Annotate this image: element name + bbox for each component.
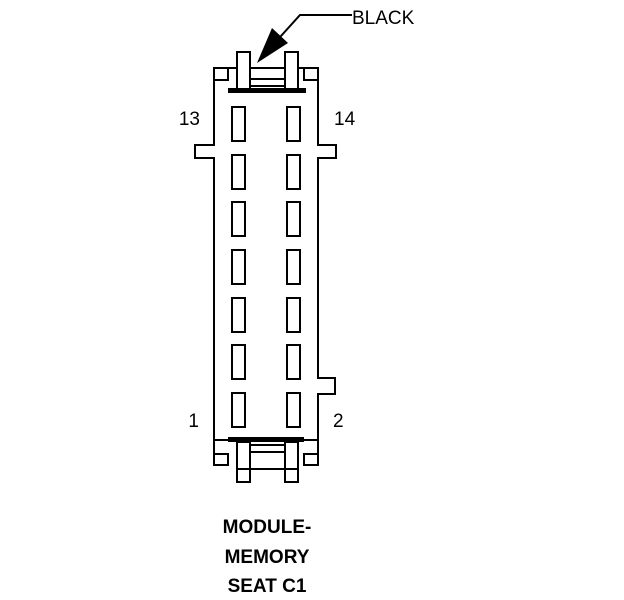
latch-base-top bbox=[228, 88, 306, 93]
pin-slot bbox=[287, 107, 300, 141]
latch-slider-top bbox=[250, 79, 285, 86]
corner-tab-top-right bbox=[304, 68, 318, 80]
pin-slot bbox=[287, 345, 300, 379]
wire-color-label: BLACK bbox=[352, 8, 415, 29]
corner-tab-bottom-right bbox=[304, 454, 318, 465]
latch-post-top-left bbox=[237, 52, 250, 90]
pin-slot bbox=[287, 250, 300, 284]
latch-post-top-right bbox=[285, 52, 298, 90]
caption-line-3: SEAT C1 bbox=[228, 576, 307, 597]
caption: MODULE- MEMORY SEAT C1 bbox=[223, 517, 312, 597]
corner-tab-bottom-left bbox=[214, 454, 228, 465]
pin-slot bbox=[232, 155, 245, 189]
caption-line-1: MODULE- bbox=[223, 517, 312, 538]
corner-tab-top-left bbox=[214, 68, 228, 80]
pin-slot bbox=[232, 202, 245, 236]
pin-slot bbox=[232, 345, 245, 379]
pin-slot bbox=[232, 250, 245, 284]
pin-slot bbox=[287, 155, 300, 189]
pin-slot bbox=[232, 298, 245, 332]
pin-slot bbox=[232, 107, 245, 141]
latch-post-bottom-right bbox=[285, 442, 298, 482]
pin-label-13: 13 bbox=[179, 109, 200, 130]
pin-slot bbox=[287, 202, 300, 236]
pin-label-2: 2 bbox=[333, 411, 344, 432]
pin-slot bbox=[232, 393, 245, 427]
connector-body bbox=[195, 68, 336, 440]
pin-label-14: 14 bbox=[334, 109, 356, 130]
pin-label-1: 1 bbox=[188, 411, 199, 432]
pin-slot bbox=[287, 393, 300, 427]
caption-line-2: MEMORY bbox=[225, 547, 310, 568]
latch-slider-bottom bbox=[250, 445, 285, 452]
pin-slot bbox=[287, 298, 300, 332]
connector-diagram: BLACK 13 14 1 2 MODULE- MEMORY SEAT C1 bbox=[0, 0, 624, 600]
latch-post-bottom-left bbox=[237, 442, 250, 482]
